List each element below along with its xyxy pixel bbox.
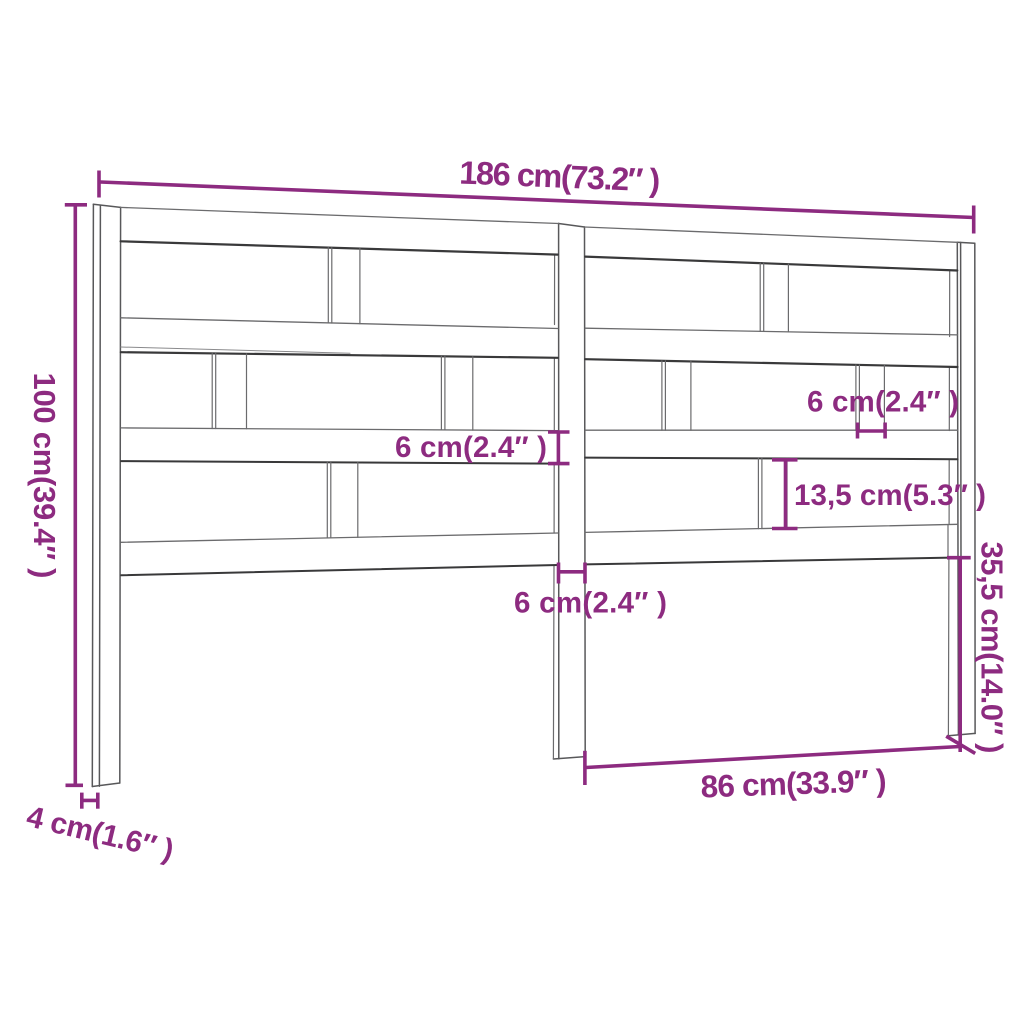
svg-text:6 cm(2.4″ ): 6 cm(2.4″ ) xyxy=(514,586,667,619)
svg-text:86 cm(33.9″ ): 86 cm(33.9″ ) xyxy=(700,762,887,804)
svg-text:35,5 cm(14.0″ ): 35,5 cm(14.0″ ) xyxy=(975,542,1010,754)
svg-text:6 cm(2.4″ ): 6 cm(2.4″ ) xyxy=(395,431,547,464)
svg-text:13,5 cm(5.3″ ): 13,5 cm(5.3″ ) xyxy=(794,479,986,512)
svg-text:100 cm(39.4″ ): 100 cm(39.4″ ) xyxy=(27,373,62,579)
svg-text:6 cm(2.4″ ): 6 cm(2.4″ ) xyxy=(807,386,959,419)
